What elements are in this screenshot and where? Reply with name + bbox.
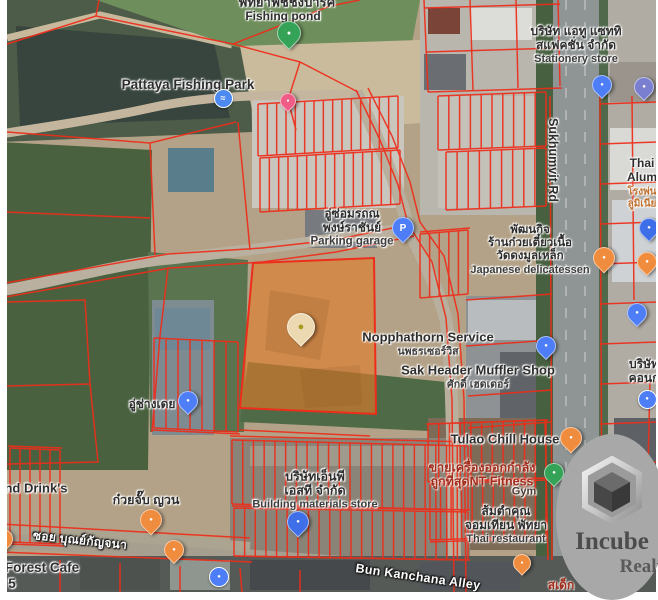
restaurant-pin-east[interactable]: ● (633, 248, 658, 276)
label-forest-cafe-5[interactable]: 5 (8, 576, 16, 592)
building-materials-pin[interactable]: ● (282, 506, 313, 537)
shop-pin-east[interactable]: ● (623, 299, 651, 327)
u-chang-doei-pin[interactable]: ● (174, 387, 202, 415)
label-thai-alum[interactable]: ThaiAlum (627, 157, 657, 185)
subject-parcel-pin[interactable]: ● (281, 307, 321, 347)
fuel-station-pin[interactable]: ● (630, 73, 658, 101)
label-somtam-thai-restaurant[interactable]: ส้มตำคุณจอมเทียน พัทยาThai restaurant (465, 505, 547, 545)
label-sa-dek-partial[interactable]: สเด็ก (548, 579, 574, 593)
label-borisat-kon-partial[interactable]: บริษัทคอนก (629, 358, 658, 386)
sak-header-pin[interactable]: ● (532, 332, 560, 360)
label-parking-garage[interactable]: อู่ซ่อมรถณพงษ์ราชันย์Parking garage (310, 208, 393, 249)
label-sukhumvit-rd[interactable]: Sukhumvit Rd (546, 118, 560, 202)
label-tulao-chill-house[interactable]: Tulao Chill House (451, 433, 560, 448)
incube-cube-logo (580, 456, 644, 524)
frame-bottom (0, 592, 658, 600)
thai-restaurant-pin[interactable]: ● (509, 550, 534, 575)
label-gym[interactable]: Gym (512, 486, 536, 499)
park-entry-pin[interactable]: ● (277, 90, 300, 113)
label-sak-header-muffler-shop[interactable]: Sak Header Muffler Shopศักดิ์ เฮดเดอร์ (401, 364, 555, 391)
label-soi-bun-kanchana: ซอย บุณย์กัญจนา (32, 529, 127, 553)
label-np-st-building-materials[interactable]: บริษัทเอ็นพีเอสที จำกัดBuilding material… (252, 469, 377, 510)
label-u-chang-doei[interactable]: อู่ช่างเดย (129, 398, 176, 412)
map-screenshot: พัทยาฟิชชิ่งปาร์คFishing pondPattaya Fis… (0, 0, 658, 600)
label-bun-kanchana-alley: Bun Kanchana Alley (355, 561, 482, 593)
watermark-badge: Incube Realty (556, 434, 658, 600)
label-nd-drinks[interactable]: nd Drink's (4, 482, 67, 497)
label-stationery-store[interactable]: บริษัท แอทู แซททิสแฟคชั่น จำกัดStationer… (530, 25, 621, 65)
watermark-brand: Incube (556, 528, 658, 556)
kuai-jap-pin[interactable]: ● (135, 504, 166, 535)
label-forest-cafe[interactable]: Forest Cafe (5, 560, 79, 576)
park-pool-icon[interactable]: ≈ (214, 89, 233, 108)
label-kuai-jap-yuan[interactable]: ก๋วยจั๊บ ญวน (113, 493, 180, 507)
thai-alum-pin[interactable]: ● (635, 214, 658, 242)
delicatessen-pin[interactable]: ● (588, 242, 619, 273)
watermark-division: Realty (590, 556, 658, 578)
alley-cafe-pin[interactable]: ● (160, 536, 188, 564)
label-japanese-delicatessen[interactable]: พัฒนกิจร้านก๋วยเตี๋ยวเนื้อวัดดงมูลเหล็กJ… (470, 224, 589, 276)
stationery-pin[interactable]: ● (588, 71, 616, 99)
poi-dot-east[interactable]: ● (638, 390, 657, 409)
label-thai-alum-sub[interactable]: โรงพ่นลูมิเนีย (627, 187, 656, 210)
parking-dot-south[interactable]: ● (209, 567, 229, 587)
label-pattaya-fishing-park[interactable]: Pattaya Fishing Park (122, 77, 255, 93)
frame-left (0, 0, 7, 600)
label-nopphathorn-service[interactable]: Nopphathorn Serviceนพธรเซอร์วิส (362, 331, 493, 358)
